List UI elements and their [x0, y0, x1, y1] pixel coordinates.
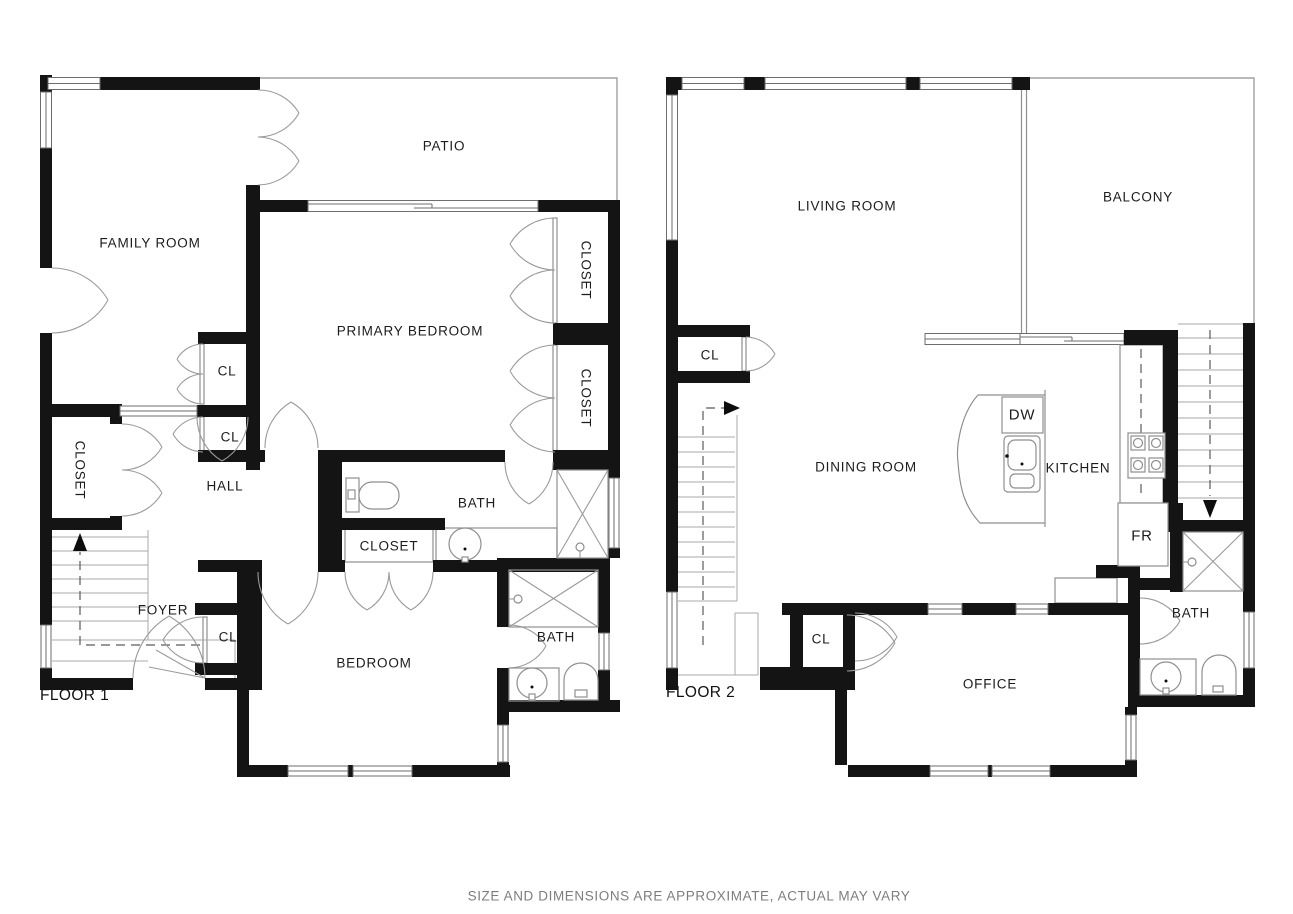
kitchen-sink-icon: [1004, 436, 1040, 492]
room-label-bath1: BATH: [458, 496, 496, 511]
floor1-plan: [40, 75, 620, 777]
toilet-icon: [346, 478, 399, 512]
bath1-door-arc: [505, 462, 553, 504]
room-label-bath2: BATH: [537, 630, 575, 645]
entry-door-arc: [133, 616, 205, 678]
sink-icon: [449, 528, 481, 562]
room-label-office: OFFICE: [963, 677, 1017, 692]
sink-icon: [1140, 659, 1196, 695]
floor2-fixtures: [958, 390, 1243, 695]
room-label-cl-hall: CL: [221, 430, 240, 445]
sink-icon: [509, 668, 559, 701]
family-room-exterior-door-arc: [52, 268, 108, 333]
floorplan-page: FAMILY ROOM PATIO PRIMARY BEDROOM CLOSET…: [0, 0, 1293, 914]
room-label-kitchen: KITCHEN: [1046, 461, 1111, 476]
floor2-doors: [746, 337, 1180, 671]
patio-sliding-door: [308, 201, 538, 212]
bedroom-door-arc: [258, 572, 318, 624]
room-label-living-room: LIVING ROOM: [798, 199, 897, 214]
room-label-dining-room: DINING ROOM: [815, 460, 917, 475]
room-label-foyer: FOYER: [138, 603, 189, 618]
stairs-direction-arrow-icon: [724, 401, 740, 415]
room-label-closet-left: CLOSET: [73, 441, 88, 500]
toilet-icon: [1202, 655, 1236, 695]
room-label-hall: HALL: [207, 479, 244, 494]
shower-icon: [557, 470, 608, 558]
stairs-up-arrow-icon: [73, 533, 87, 551]
floor1-doors: [52, 90, 555, 678]
dining-half-wall: [1055, 578, 1117, 603]
closet-left-door-arcs: [122, 424, 162, 516]
room-label-cl-family: CL: [218, 364, 237, 379]
room-label-cl-foyer: CL: [219, 630, 238, 645]
room-label-primary-bedroom: PRIMARY BEDROOM: [337, 324, 484, 339]
room-label-bedroom: BEDROOM: [336, 656, 411, 671]
patio-french-door-arcs: [258, 90, 299, 185]
cl-upper-door-arc: [746, 337, 775, 371]
room-label-balcony: BALCONY: [1103, 190, 1173, 205]
floor2-stairs-left: [666, 401, 758, 675]
floor2-plan: [666, 77, 1255, 777]
cl-hall-door-arc: [173, 417, 203, 452]
room-label-family-room: FAMILY ROOM: [99, 236, 200, 251]
bedroom-closet-bifold-arcs: [345, 572, 433, 610]
room-label-cl-upper-f2: CL: [701, 348, 720, 363]
room-label-cl-lower-f2: CL: [812, 632, 831, 647]
room-label-closet-bath: CLOSET: [360, 539, 419, 554]
stove-icon: [1128, 433, 1165, 478]
room-label-patio: PATIO: [423, 139, 466, 154]
floorplan-canvas: [0, 0, 1293, 914]
floor2-stairs-right: [1178, 324, 1243, 518]
toilet-icon: [564, 663, 598, 700]
floor1-thin-outlines: [200, 78, 617, 663]
floor1-label: FLOOR 1: [40, 687, 109, 705]
primary-bedroom-door-arc: [265, 402, 318, 448]
cl-family-door-arcs: [177, 344, 203, 404]
disclaimer-text: SIZE AND DIMENSIONS ARE APPROXIMATE, ACT…: [468, 889, 911, 904]
primary-closet-bifold-arcs: [510, 218, 555, 452]
room-label-bath-f2: BATH: [1172, 606, 1210, 621]
floor2-label: FLOOR 2: [666, 684, 735, 702]
stairs-down-arrow-icon: [1203, 500, 1217, 518]
room-label-fridge: FR: [1131, 528, 1153, 545]
room-label-closet-right-lower: CLOSET: [579, 369, 594, 428]
balcony-railing: [1022, 90, 1027, 333]
shower-icon: [509, 570, 598, 627]
room-label-closet-right-upper: CLOSET: [579, 241, 594, 300]
shower-icon: [1183, 532, 1243, 591]
room-label-dishwasher: DW: [1009, 407, 1036, 424]
